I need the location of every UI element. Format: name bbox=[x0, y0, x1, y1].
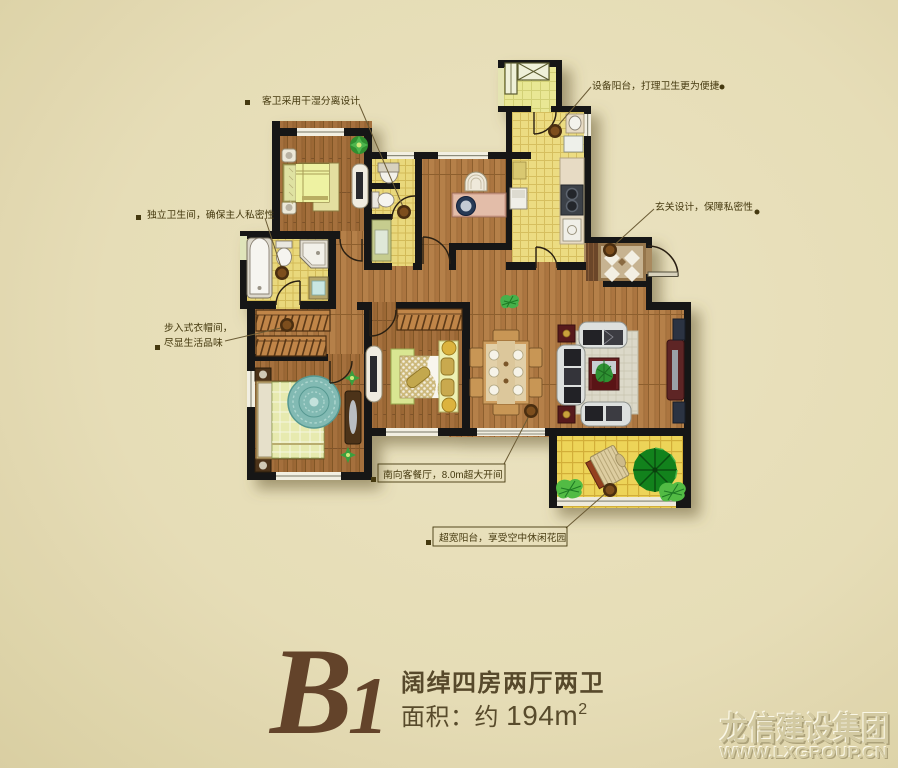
svg-text:尽显生活品味: 尽显生活品味 bbox=[164, 336, 223, 349]
svg-text:南向客餐厅，8.0m超大开间: 南向客餐厅，8.0m超大开间 bbox=[383, 468, 503, 481]
svg-text:客卫采用干湿分离设计: 客卫采用干湿分离设计 bbox=[262, 94, 360, 107]
svg-text:面积：约 194m2: 面积：约 194m2 bbox=[401, 700, 588, 731]
svg-text:设备阳台，打理卫生更为便捷: 设备阳台，打理卫生更为便捷 bbox=[592, 79, 720, 92]
svg-text:龙信建设集团: 龙信建设集团 bbox=[720, 710, 890, 747]
svg-text:步入式衣帽间，: 步入式衣帽间， bbox=[164, 321, 233, 334]
svg-text:WWW.LXGROUP.CN: WWW.LXGROUP.CN bbox=[720, 745, 888, 762]
svg-text:独立卫生间，确保主人私密性: 独立卫生间，确保主人私密性 bbox=[147, 208, 275, 221]
svg-text:阔绰四房两厅两卫: 阔绰四房两厅两卫 bbox=[401, 669, 605, 697]
svg-text:玄关设计，保障私密性: 玄关设计，保障私密性 bbox=[655, 200, 753, 213]
svg-text:超宽阳台，享受空中休闲花园: 超宽阳台，享受空中休闲花园 bbox=[439, 531, 566, 544]
